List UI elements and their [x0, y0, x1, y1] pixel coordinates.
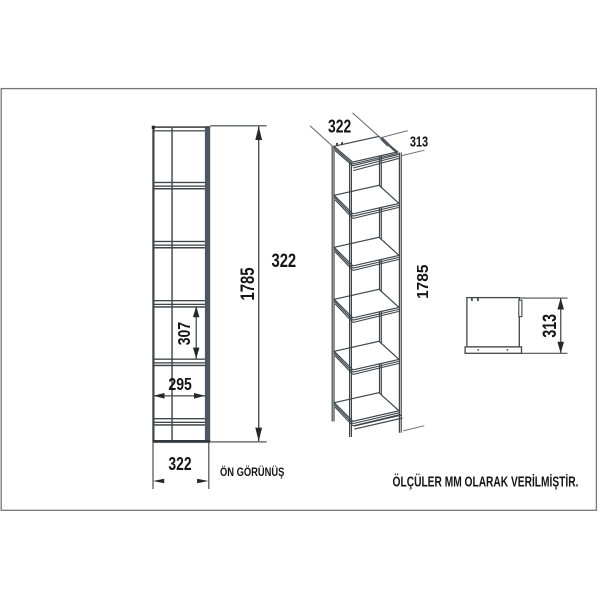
svg-text:322: 322 [328, 117, 351, 137]
svg-text:322: 322 [168, 454, 191, 474]
svg-text:ÖN GÖRÜNÜŞ: ÖN GÖRÜNÜŞ [220, 465, 284, 479]
svg-text:1785: 1785 [415, 264, 432, 299]
svg-text:307: 307 [175, 322, 195, 345]
svg-text:1785: 1785 [236, 267, 259, 300]
svg-text:ÖLÇÜLER MM OLARAK VERİLMİŞTİR.: ÖLÇÜLER MM OLARAK VERİLMİŞTİR. [393, 473, 579, 490]
svg-text:313: 313 [410, 133, 428, 150]
svg-text:295: 295 [168, 375, 191, 395]
svg-text:322: 322 [271, 249, 296, 272]
svg-text:313: 313 [539, 314, 560, 338]
